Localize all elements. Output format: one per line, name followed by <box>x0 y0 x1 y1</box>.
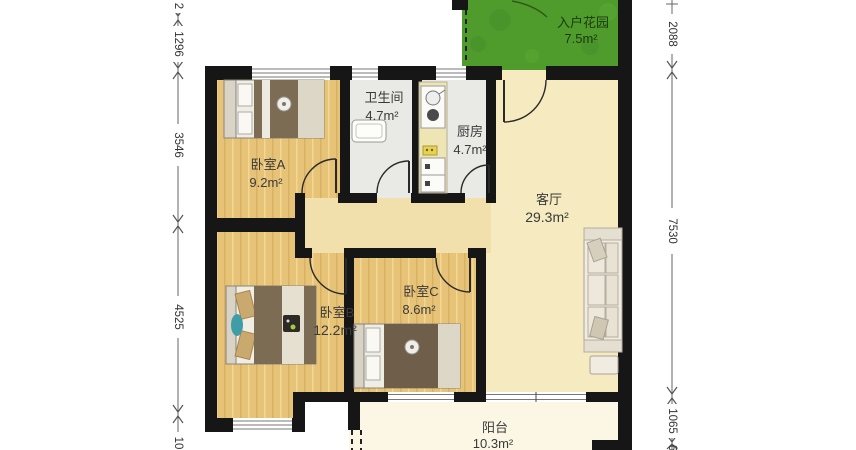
room-label-balcony-area: 10.3m² <box>473 436 514 450</box>
wall <box>352 248 436 258</box>
bed-icon <box>224 80 324 138</box>
hallway-floor <box>300 198 491 253</box>
wall <box>293 392 305 430</box>
room-label-kitchen-area: 4.7m² <box>453 142 487 157</box>
room-label-balcony-name: 阳台 <box>482 420 508 435</box>
dimension-right-0: 2088 <box>666 21 678 47</box>
wall <box>338 193 377 203</box>
room-label-bathroom-name: 卫生间 <box>364 90 403 105</box>
window <box>252 66 330 80</box>
wall <box>486 66 496 203</box>
room-label-bedroomA-area: 9.2m² <box>249 175 283 190</box>
wall <box>411 193 465 203</box>
wall <box>205 418 233 432</box>
room-label-bedroomB-name: 卧室B <box>320 305 355 320</box>
wall <box>205 66 217 432</box>
dimension-right-3: 6 <box>666 445 678 450</box>
dimension-left-0: 2 <box>172 3 184 9</box>
sofa-icon <box>584 228 622 374</box>
window <box>436 66 466 80</box>
room-garden-floor <box>462 0 622 70</box>
wall <box>305 392 388 402</box>
dimension-left-1: 1296 <box>172 31 184 57</box>
window <box>352 66 378 80</box>
bed-icon <box>226 286 316 364</box>
wall <box>348 402 360 430</box>
room-label-kitchen-name: 厨房 <box>457 124 483 139</box>
room-label-garden-name: 入户花园 <box>557 15 609 30</box>
floor-plan-page: 入户花园 7.5m² 卧室A 9.2m² 卫生间 4.7m² 厨房 4.7m² … <box>0 0 856 450</box>
dimension-left-3: 4525 <box>172 304 184 330</box>
sliding-door-window <box>486 392 586 402</box>
kitchen-counter-icon <box>419 82 447 193</box>
wall <box>586 392 618 402</box>
wall <box>476 248 486 392</box>
wall <box>592 440 632 450</box>
dimension-left-2: 3546 <box>172 132 184 158</box>
wall <box>205 218 305 232</box>
dimension-left-4: 10 <box>172 437 184 450</box>
room-label-living-name: 客厅 <box>536 192 562 207</box>
dimension-right-1: 7530 <box>666 218 678 244</box>
room-label-living-area: 29.3m² <box>525 209 569 225</box>
bathtub-icon <box>352 120 386 142</box>
wall <box>490 193 496 203</box>
dimension-right-2: 1065 <box>666 408 678 434</box>
wall <box>618 0 632 450</box>
room-label-bedroomC-name: 卧室C <box>403 284 438 299</box>
room-label-bedroomA-name: 卧室A <box>251 157 286 172</box>
window <box>388 392 454 402</box>
floor-plan-svg: 入户花园 7.5m² 卧室A 9.2m² 卫生间 4.7m² 厨房 4.7m² … <box>0 0 856 450</box>
wall <box>452 0 468 10</box>
window <box>233 418 292 432</box>
wall <box>205 66 470 80</box>
room-label-bedroomB-area: 12.2m² <box>313 322 357 338</box>
dimension-line-right: 2088 7530 1065 6 <box>665 0 679 450</box>
wall <box>454 392 486 402</box>
dimension-line-left: 2 1296 3546 4525 10 <box>171 0 185 450</box>
wall <box>340 66 350 203</box>
room-label-bathroom-area: 4.7m² <box>365 108 399 123</box>
wall <box>295 248 312 258</box>
room-label-bedroomC-area: 8.6m² <box>402 302 436 317</box>
wall <box>546 66 622 80</box>
room-label-garden-area: 7.5m² <box>564 31 598 46</box>
bed-icon <box>354 324 460 388</box>
